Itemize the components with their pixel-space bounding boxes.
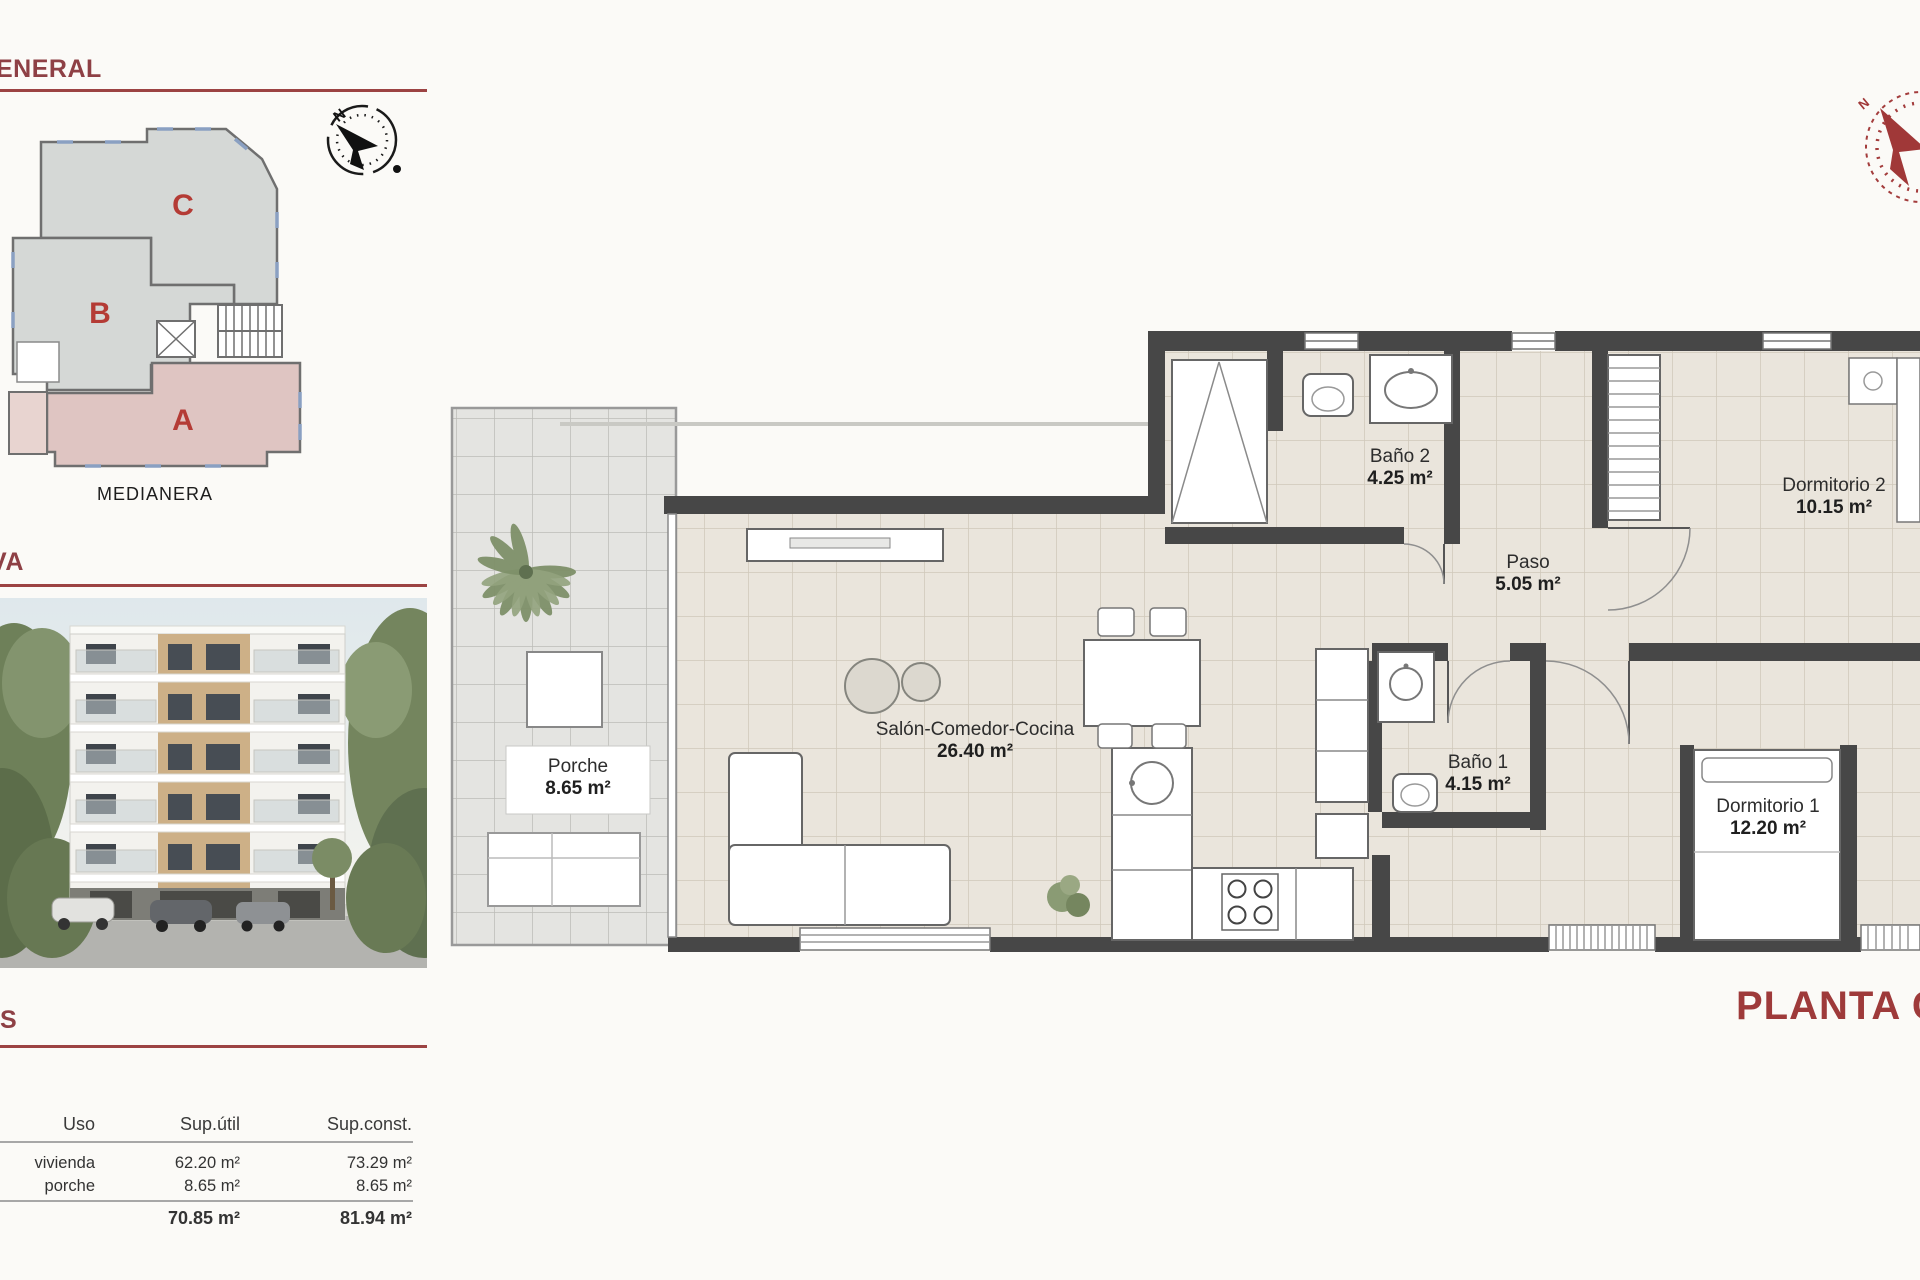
bed-partial xyxy=(1897,358,1920,522)
row-porche-uso: porche xyxy=(0,1177,95,1196)
shower-closet-icon xyxy=(1172,360,1267,523)
plan-sheet: ENERAL xyxy=(0,0,1920,1280)
sliding-door xyxy=(800,928,990,950)
section-general-title: ENERAL xyxy=(0,55,102,84)
unit-c-label: C xyxy=(172,189,194,222)
shutter-window xyxy=(1861,925,1920,950)
key-plan-room xyxy=(17,342,59,382)
section-surfaces-rule xyxy=(0,1045,427,1048)
svg-text:Paso: Paso xyxy=(1506,552,1549,573)
svg-text:4.15 m²: 4.15 m² xyxy=(1445,774,1510,795)
pillow xyxy=(1702,758,1832,782)
compass-rose-icon: N xyxy=(1848,78,1920,218)
plan-title: PLANTA CUA xyxy=(1736,984,1920,1029)
col-util: Sup.útil xyxy=(95,1114,240,1135)
table-row: porche 8.65 m² 8.65 m² xyxy=(0,1177,414,1196)
sofa xyxy=(729,845,950,925)
elevator-icon xyxy=(157,321,195,357)
svg-text:4.25 m²: 4.25 m² xyxy=(1367,468,1432,489)
svg-text:5.05 m²: 5.05 m² xyxy=(1495,574,1560,595)
porche-table xyxy=(527,652,602,727)
apartment-building xyxy=(70,626,345,920)
table-row: vivienda 62.20 m² 73.29 m² xyxy=(0,1154,414,1173)
row-vivienda-util: 62.20 m² xyxy=(95,1154,240,1173)
row-porche-const: 8.65 m² xyxy=(240,1177,412,1196)
svg-text:Dormitorio 1: Dormitorio 1 xyxy=(1716,796,1819,817)
coffee-table xyxy=(845,659,899,713)
sink-counter-icon xyxy=(1370,355,1452,423)
key-plan: C B A xyxy=(5,112,315,490)
dining-table xyxy=(1084,640,1200,726)
tv-icon xyxy=(790,538,890,548)
coffee-table xyxy=(902,663,940,701)
compass-rose-n: N xyxy=(1855,95,1872,113)
medianera-caption: MEDIANERA xyxy=(45,484,265,505)
pantry-units xyxy=(1316,649,1368,802)
glass-wall xyxy=(668,514,676,937)
svg-text:Baño 1: Baño 1 xyxy=(1448,752,1508,773)
wardrobe-icon xyxy=(1608,355,1660,520)
porche-bench xyxy=(488,833,640,906)
col-uso: Uso xyxy=(0,1114,95,1135)
unit-a-arm xyxy=(9,392,47,454)
svg-text:26.40 m²: 26.40 m² xyxy=(937,741,1013,762)
bedroom1-furniture xyxy=(1694,750,1840,940)
section-surfaces-title: S xyxy=(0,1006,17,1035)
table-rule-top xyxy=(0,1141,413,1143)
svg-text:Baño 2: Baño 2 xyxy=(1370,446,1430,467)
col-const: Sup.const. xyxy=(240,1114,412,1135)
total-const: 81.94 m² xyxy=(240,1208,412,1229)
sink-icon xyxy=(1378,652,1434,722)
shutter-window xyxy=(1549,925,1655,950)
unit-a-label: A xyxy=(172,404,194,437)
room-label-dorm2: Dormitorio 2 10.15 m² xyxy=(1782,475,1885,518)
room-label-bano2: Baño 2 4.25 m² xyxy=(1367,446,1432,489)
room-label-bano1: Baño 1 4.15 m² xyxy=(1445,752,1510,795)
unit-b-label: B xyxy=(89,297,111,330)
nightstand xyxy=(1849,358,1897,404)
total-util: 70.85 m² xyxy=(95,1208,240,1229)
sofa xyxy=(729,753,802,860)
section-general-rule xyxy=(0,89,427,92)
building-render xyxy=(0,598,427,968)
svg-text:8.65 m²: 8.65 m² xyxy=(545,778,610,799)
svg-text:10.15 m²: 10.15 m² xyxy=(1796,497,1872,518)
table-rule-bottom xyxy=(0,1200,413,1202)
svg-text:Porche: Porche xyxy=(548,756,608,777)
room-label-dorm1: Dormitorio 1 12.20 m² xyxy=(1716,796,1819,839)
toilet-icon xyxy=(1303,374,1353,416)
surfaces-table-header: Uso Sup.útil Sup.const. xyxy=(0,1114,414,1135)
surfaces-table-total: 70.85 m² 81.94 m² xyxy=(0,1208,414,1229)
compass-needle xyxy=(336,124,378,170)
stairs-icon xyxy=(218,305,282,357)
row-vivienda-uso: vivienda xyxy=(0,1154,95,1173)
section-render-title: VA xyxy=(0,548,24,577)
floor-plan: Baño 2 4.25 m² Paso 5.05 m² Dormitorio 2… xyxy=(450,320,1920,960)
trees-right xyxy=(340,608,427,958)
north-compass-icon: N xyxy=(318,96,414,192)
kitchen-counter xyxy=(1112,748,1192,940)
svg-text:12.20 m²: 12.20 m² xyxy=(1730,818,1806,839)
row-vivienda-const: 73.29 m² xyxy=(240,1154,412,1173)
row-porche-util: 8.65 m² xyxy=(95,1177,240,1196)
svg-text:Dormitorio 2: Dormitorio 2 xyxy=(1782,475,1885,496)
section-render-rule xyxy=(0,584,427,587)
svg-text:Salón-Comedor-Cocina: Salón-Comedor-Cocina xyxy=(876,719,1075,740)
room-label-porche: Porche 8.65 m² xyxy=(545,756,610,799)
